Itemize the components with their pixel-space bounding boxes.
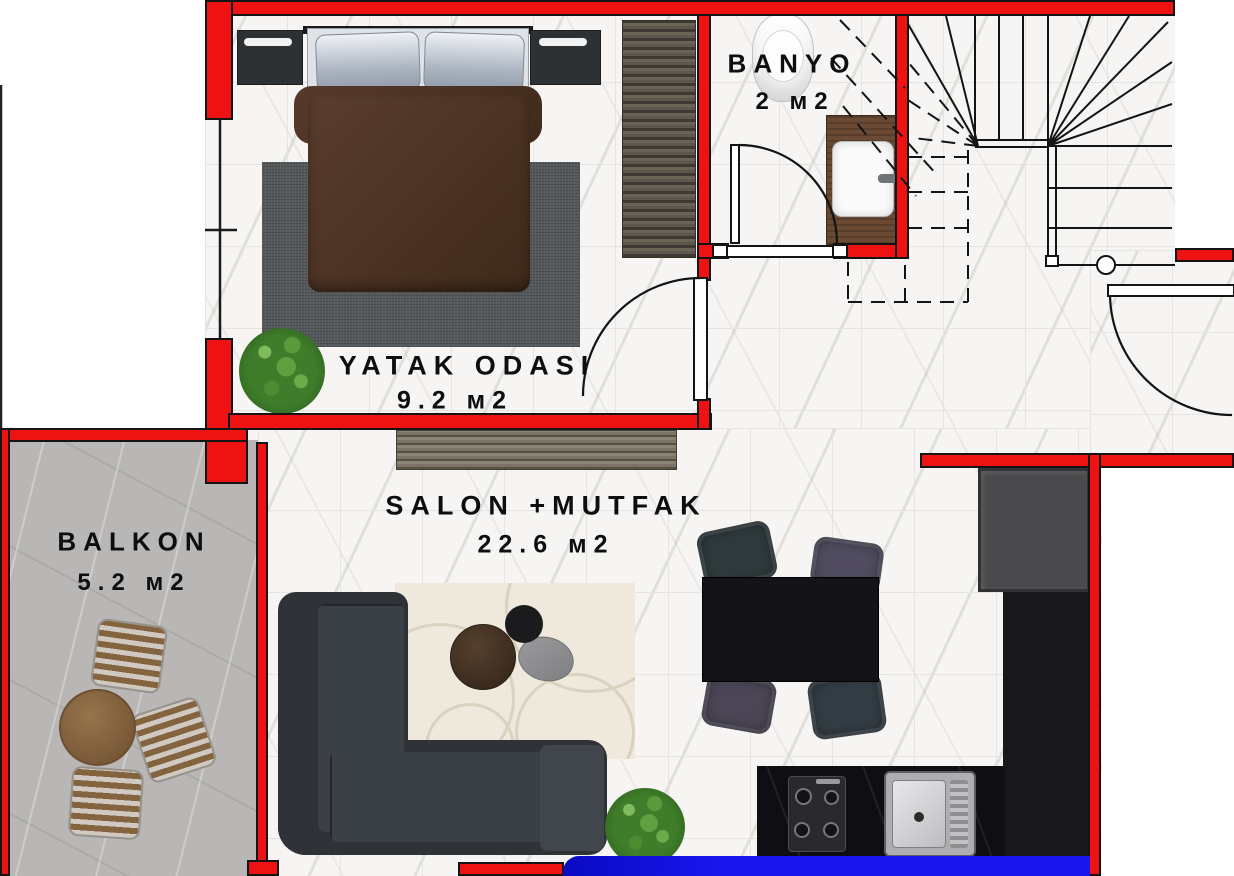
room-area-salon: 22.6 м2 (477, 531, 614, 560)
wall-bedroom-left-upper (205, 0, 233, 120)
balcony-chair-bottom (68, 766, 145, 841)
wall-hall-bottom (920, 453, 1234, 468)
cooktop-controls (816, 779, 840, 784)
wall-balcony-left (0, 428, 10, 876)
bedroom-plant (239, 328, 325, 414)
kitchen-tall-unit (1003, 592, 1088, 858)
room-area-balkon: 5.2 м2 (77, 569, 190, 597)
salon-plant (605, 788, 685, 866)
room-label-balkon: BALKON (57, 527, 210, 558)
floor-entry-landing (1090, 250, 1234, 468)
fridge (978, 468, 1090, 592)
coffee-table-small-black (505, 605, 543, 643)
burner (823, 822, 839, 838)
wall-bedroom-bottom (228, 413, 712, 430)
wall-entry-stub (1175, 248, 1234, 262)
nightstand-handle-left (244, 38, 292, 46)
room-label-yatak: YATAK ODASI (339, 351, 596, 382)
bed-duvet (308, 96, 530, 292)
floor-plan: BANYO 2 м2 YATAK ODASI 9.2 м2 SALON +MUT… (0, 0, 1234, 876)
wall-bedroom-door-top-stub (697, 257, 711, 281)
sink-drain (914, 812, 924, 822)
cooktop (788, 776, 846, 852)
nightstand-handle-right (539, 38, 587, 46)
coffee-table-large (450, 624, 516, 690)
sofa-chaise-end (540, 745, 604, 851)
wall-top (205, 0, 1175, 16)
balcony-table (59, 689, 136, 766)
wall-balcony-top (0, 428, 248, 442)
sink-drainboard (950, 780, 968, 848)
wall-salon-left (256, 442, 268, 864)
room-area-banyo: 2 м2 (755, 88, 834, 116)
wall-bottom-stub (458, 862, 564, 876)
burner (824, 790, 839, 805)
dining-table (703, 578, 878, 681)
burner (794, 822, 810, 838)
wall-bath-left (697, 14, 711, 259)
room-label-salon: SALON +MUTFAK (385, 491, 706, 522)
burner (795, 788, 812, 805)
room-label-banyo: BANYO (728, 49, 857, 80)
wall-salon-right (1088, 453, 1101, 876)
wardrobe (622, 20, 696, 258)
wall-bath-right (895, 14, 909, 259)
wall-salon-left-foot (247, 860, 279, 876)
wall-bedroom-door-bottom-stub (697, 398, 711, 430)
dining-chair-bottom-right (806, 671, 888, 741)
room-area-yatak: 9.2 м2 (397, 387, 513, 416)
window-band-bottom (563, 856, 1090, 876)
balcony-chair-top (90, 617, 169, 694)
sideboard (396, 430, 677, 470)
